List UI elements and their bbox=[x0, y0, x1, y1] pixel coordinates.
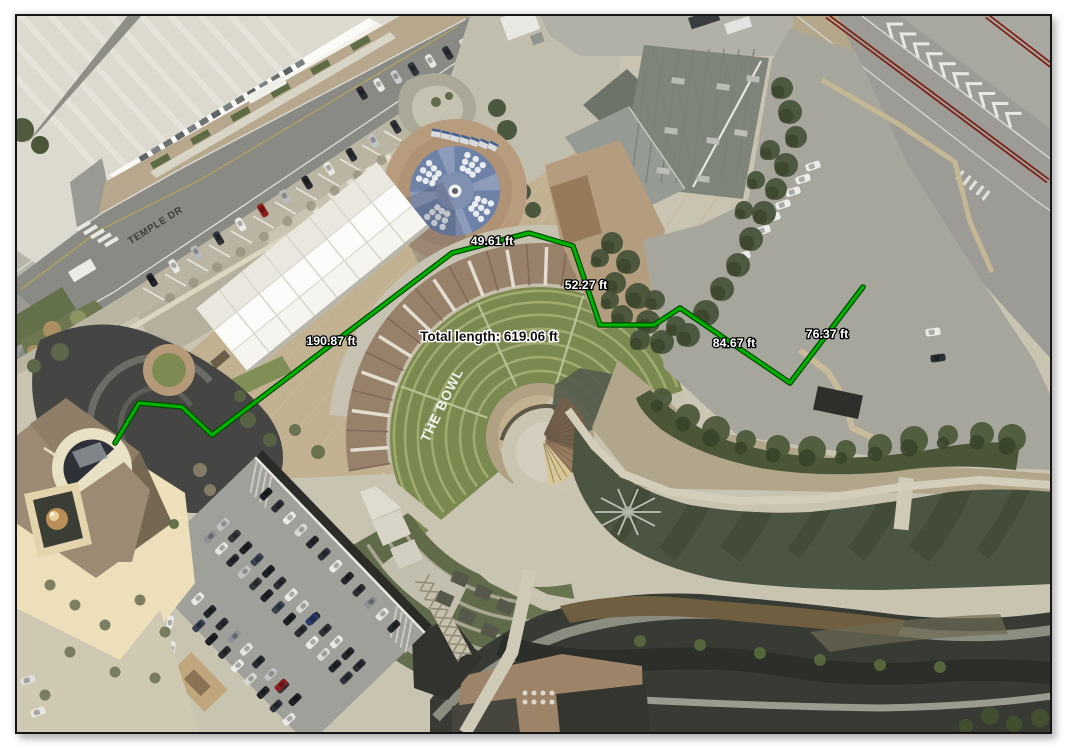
svg-text:52.27 ft: 52.27 ft bbox=[565, 278, 607, 292]
svg-text:190.87 ft: 190.87 ft bbox=[306, 334, 355, 348]
svg-text:49.61 ft: 49.61 ft bbox=[471, 234, 513, 248]
svg-text:Total length: 619.06 ft: Total length: 619.06 ft bbox=[420, 329, 558, 344]
svg-text:76.37 ft: 76.37 ft bbox=[806, 327, 848, 341]
svg-text:84.67 ft: 84.67 ft bbox=[713, 336, 755, 350]
